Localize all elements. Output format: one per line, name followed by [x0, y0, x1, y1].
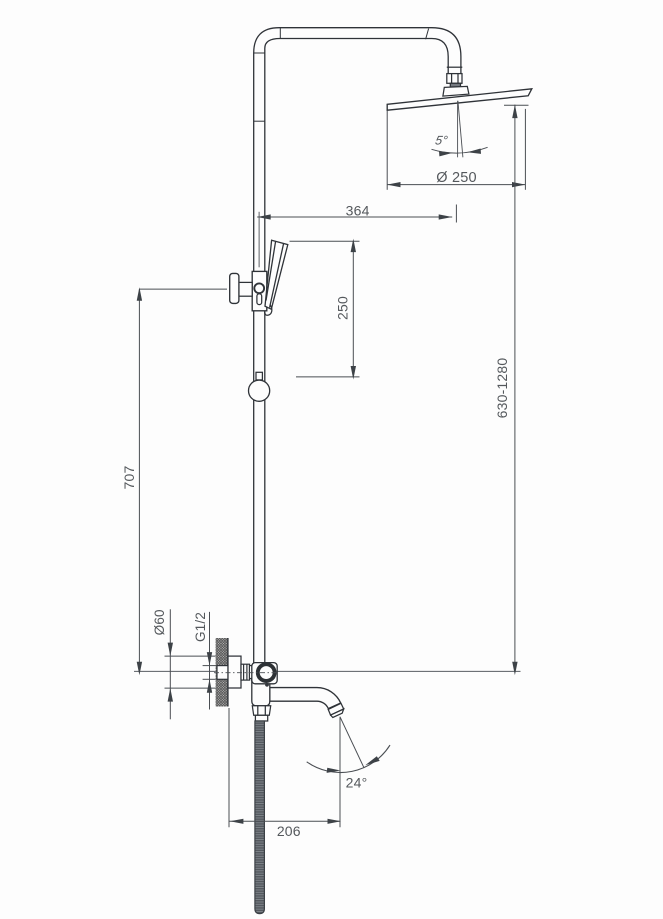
svg-text:G1/2: G1/2: [193, 612, 208, 642]
svg-text:707: 707: [121, 466, 137, 490]
svg-text:24°: 24°: [346, 774, 368, 790]
svg-text:630-1280: 630-1280: [494, 358, 510, 419]
svg-text:206: 206: [277, 823, 301, 839]
svg-text:Ø 250: Ø 250: [436, 170, 477, 186]
svg-text:Ø60: Ø60: [152, 609, 167, 635]
svg-text:5°: 5°: [434, 134, 449, 148]
svg-text:364: 364: [346, 203, 370, 219]
svg-text:250: 250: [335, 296, 351, 320]
